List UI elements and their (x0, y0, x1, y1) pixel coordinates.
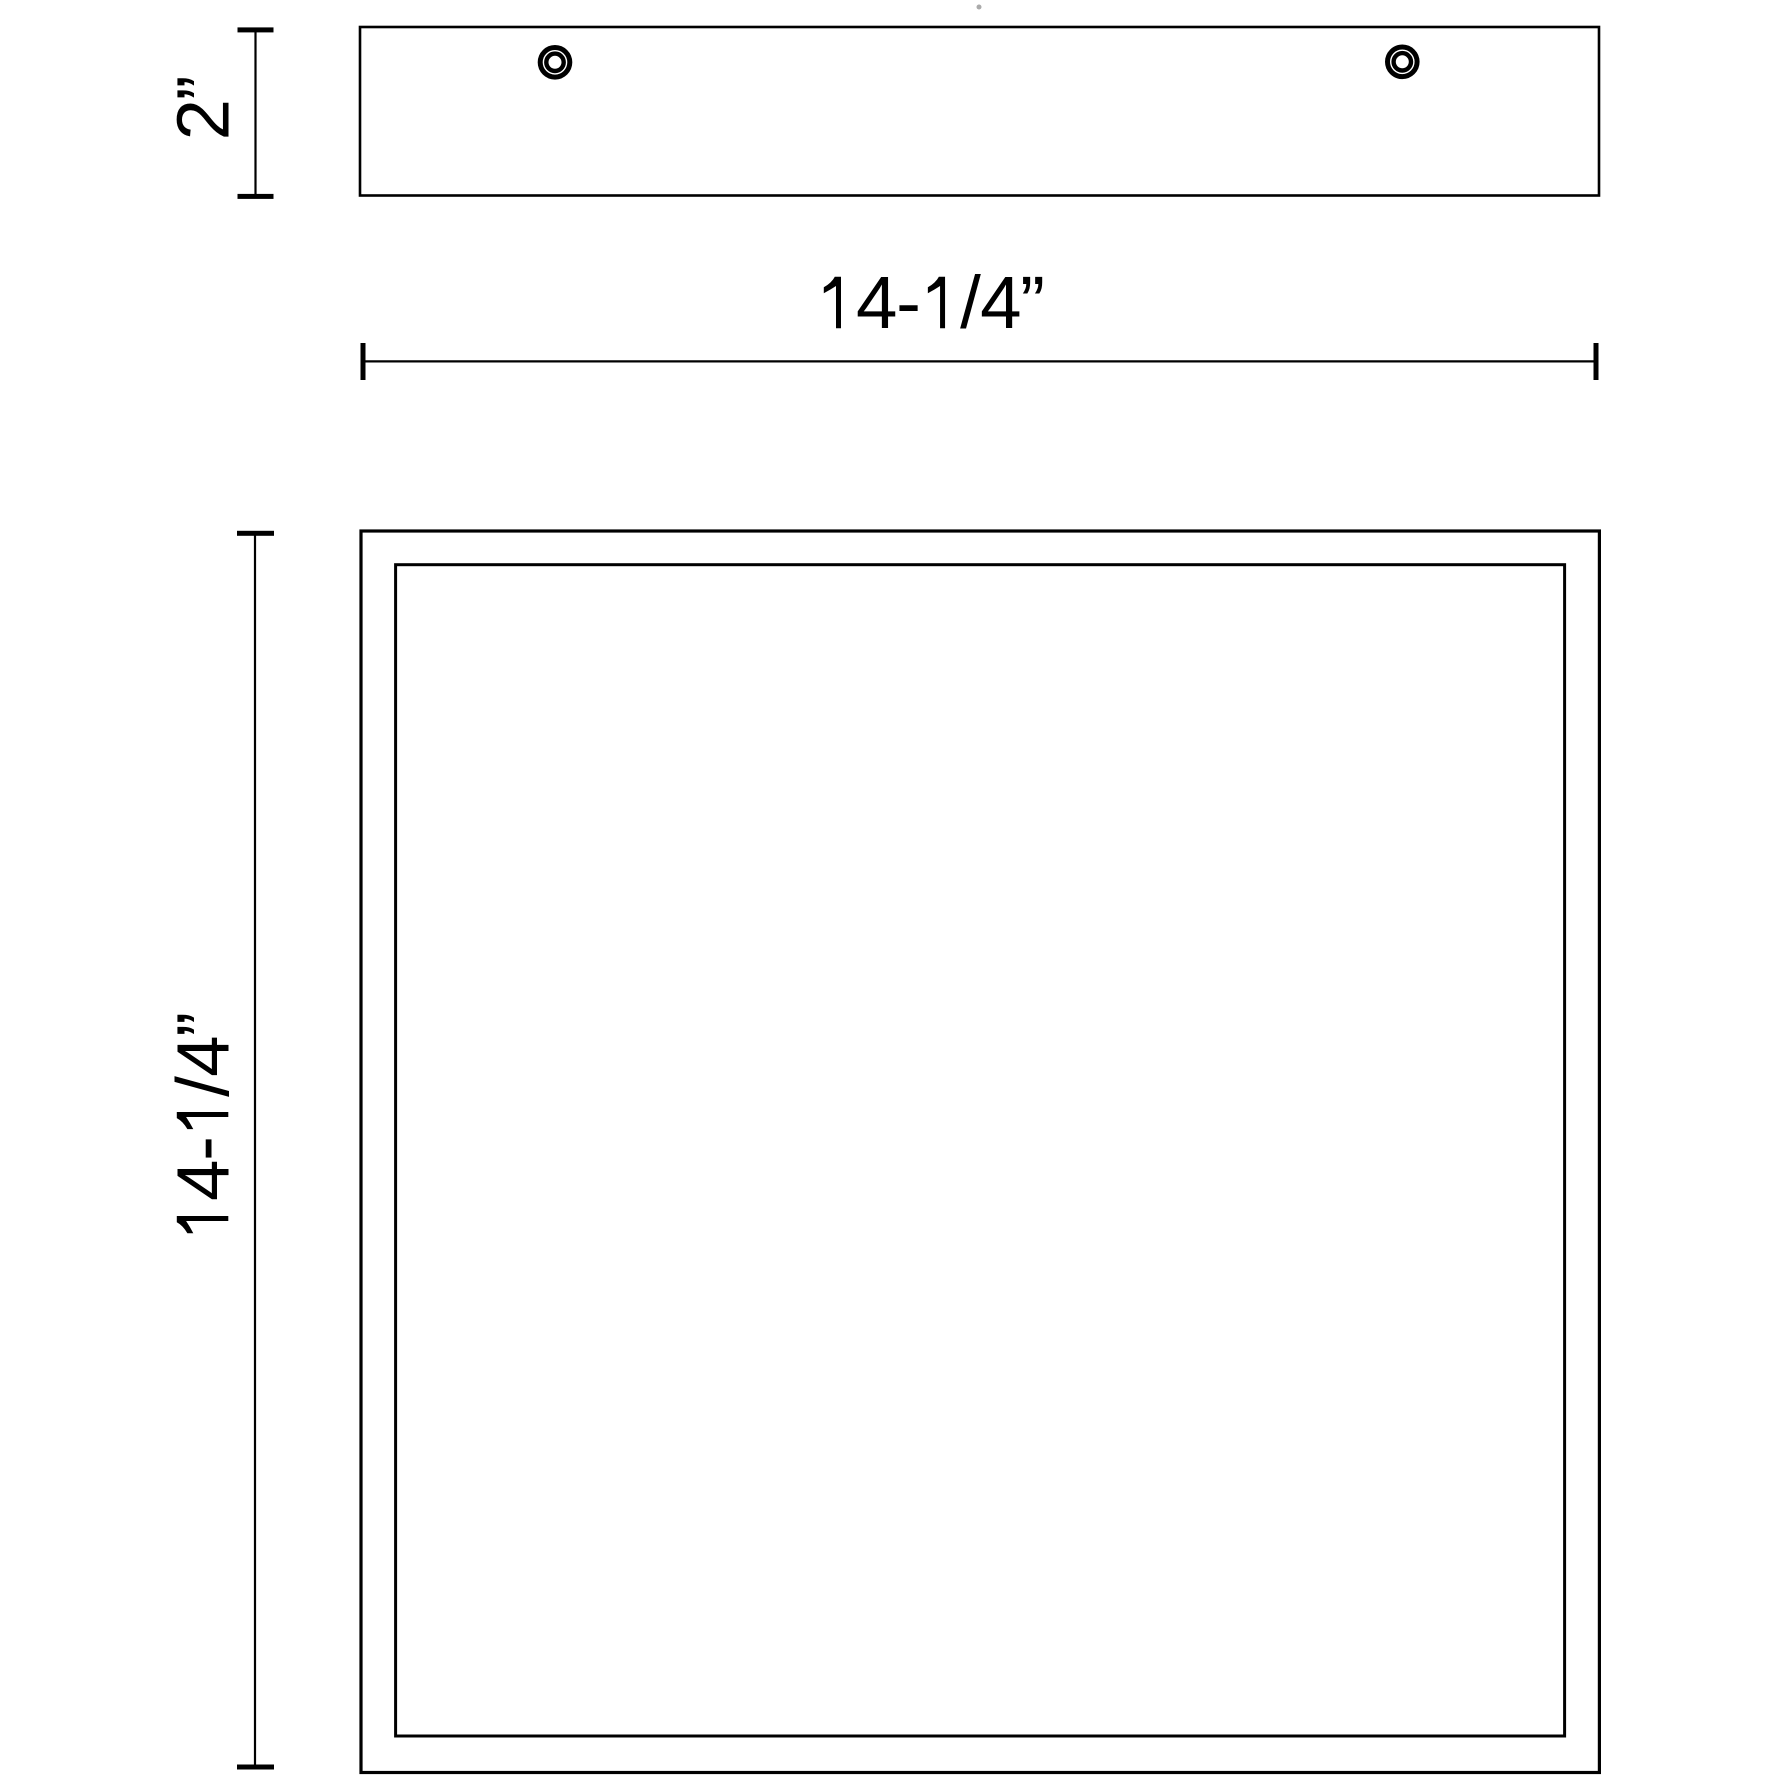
svg-text:”: ” (161, 76, 244, 101)
svg-text:4: 4 (856, 261, 897, 344)
svg-text:4: 4 (161, 1160, 244, 1201)
svg-text:”: ” (161, 1012, 244, 1037)
svg-text:4: 4 (161, 1035, 244, 1076)
svg-text:2: 2 (161, 99, 244, 140)
svg-text:”: ” (1020, 261, 1045, 344)
svg-text:4: 4 (980, 261, 1021, 344)
svg-text:/: / (161, 1076, 244, 1097)
svg-text:-: - (896, 261, 921, 344)
svg-text:/: / (960, 261, 981, 344)
svg-text:-: - (161, 1136, 244, 1161)
